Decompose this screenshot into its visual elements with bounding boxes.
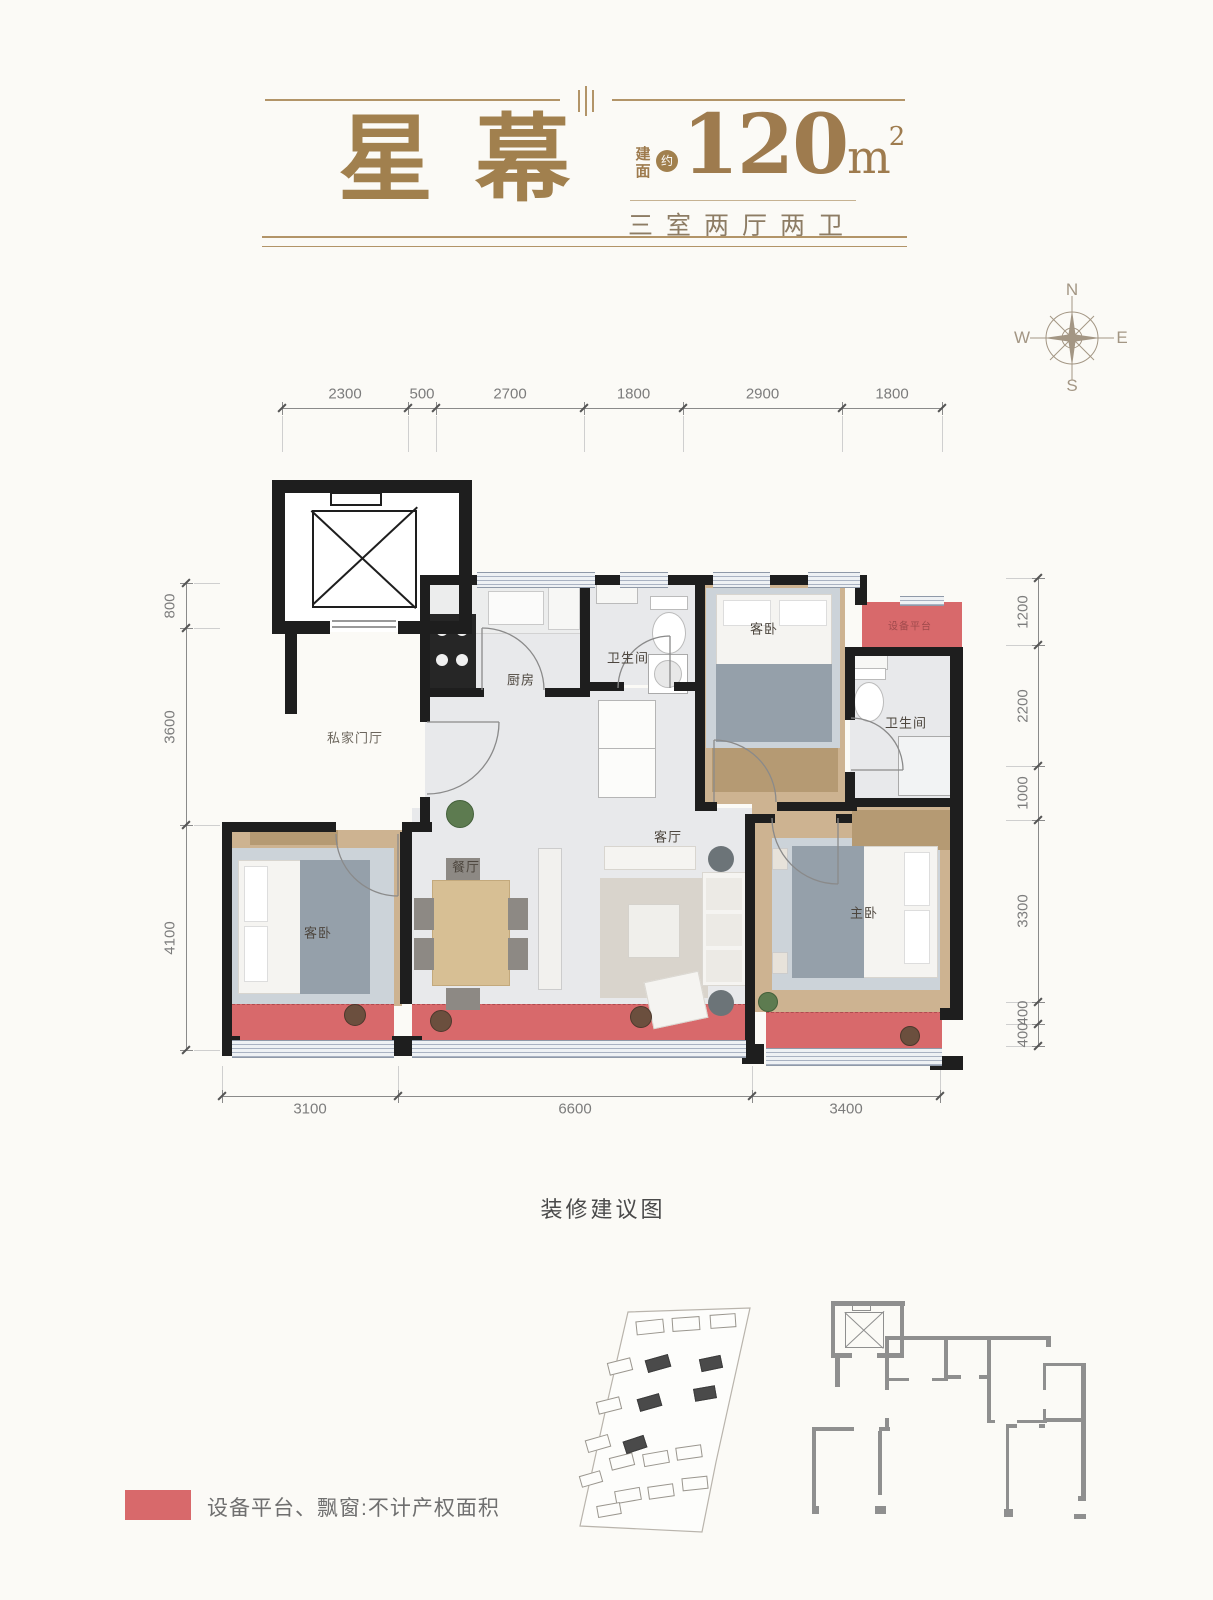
room-label-equipment-platform: 设备平台 xyxy=(888,618,932,633)
room-label-private-foyer: 私家门厅 xyxy=(327,728,383,747)
room-label-guest-bedroom-north: 客卧 xyxy=(750,619,778,638)
room-label-bathroom-1: 卫生间 xyxy=(607,648,649,667)
room-label-living-room: 客厅 xyxy=(654,827,682,846)
room-label-kitchen: 厨房 xyxy=(507,670,535,689)
room-label-bathroom-2: 卫生间 xyxy=(885,713,927,732)
room-label-guest-bedroom-west: 客卧 xyxy=(304,923,332,942)
room-label-master-bedroom: 主卧 xyxy=(850,903,878,922)
room-labels: 私家门厅厨房卫生间客卧设备平台卫生间餐厅客厅主卧客卧 xyxy=(0,0,1213,1600)
floorplan-page: { "header": { "title": "星幕", "area_label… xyxy=(0,0,1213,1600)
room-label-dining-room: 餐厅 xyxy=(452,857,480,876)
